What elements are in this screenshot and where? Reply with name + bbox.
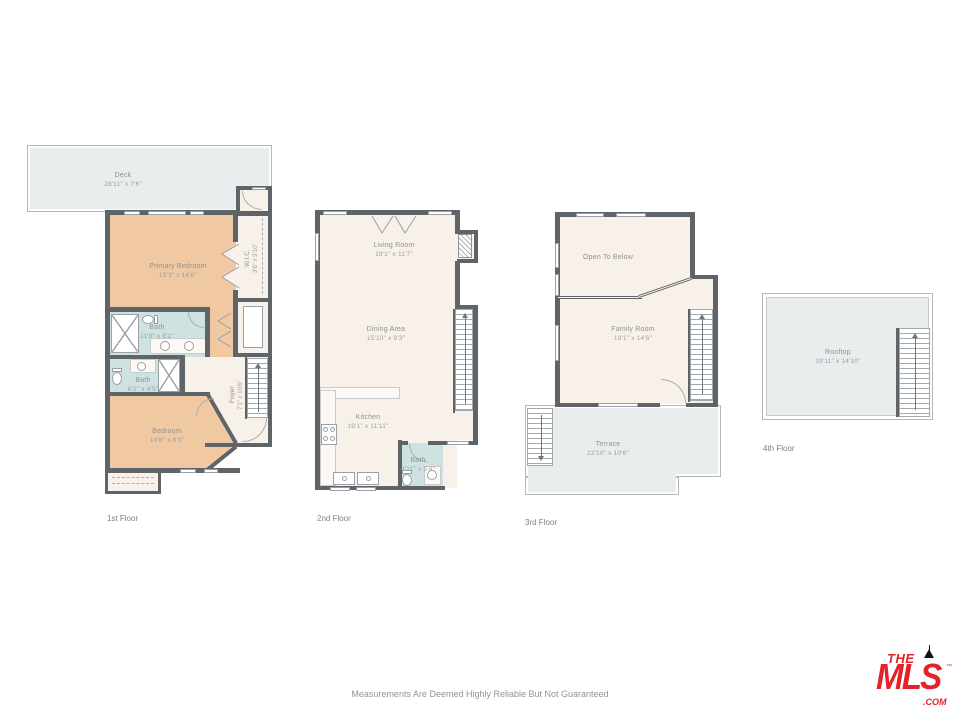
room-label-wic: W.I.C. 3'6" x 9'10" xyxy=(244,220,260,296)
sink xyxy=(342,476,347,481)
wall xyxy=(105,470,108,493)
room-label-dining-area: Dining Area 15'10" x 9'3" xyxy=(326,325,446,343)
stairs xyxy=(899,328,930,417)
room-label-bedroom: Bedroom 14'6" x 8'9" xyxy=(107,427,227,445)
room-name: Primary Bedroom xyxy=(118,262,238,271)
room-name: Kitchen xyxy=(308,413,428,422)
room-name: Dining Area xyxy=(326,325,446,334)
room-dims: 22'10" x 10'6" xyxy=(548,449,668,458)
room-dims: 14'6" x 8'9" xyxy=(107,436,227,445)
room-dims: 19'1" x 11'11" xyxy=(308,422,428,431)
stairs xyxy=(455,309,473,411)
window xyxy=(252,187,266,190)
stair-direction-arrow xyxy=(702,316,703,394)
room-label-open-to-below: Open To Below xyxy=(548,253,668,262)
burner xyxy=(330,436,335,441)
room-name: Deck xyxy=(63,171,183,180)
room-dims: 3'6" x 9'10" xyxy=(252,220,260,296)
sink xyxy=(184,341,194,351)
room-label-foyer: Foyer 7'1" x 10'6" xyxy=(229,360,244,430)
wall xyxy=(398,441,408,445)
window xyxy=(447,441,469,445)
room-name: Open To Below xyxy=(548,253,668,262)
room-dims: 19'11" x 14'10" xyxy=(778,357,898,366)
room-name: Living Room xyxy=(334,241,454,250)
sink xyxy=(160,341,170,351)
window xyxy=(598,403,638,407)
room-fill-bay-window xyxy=(108,470,158,491)
wall xyxy=(236,211,272,216)
room-name: Family Room xyxy=(573,325,693,334)
room-dims: 15'3" x 16'6" xyxy=(118,271,238,280)
closet-shelf xyxy=(243,306,263,348)
room-dims: 28'11" x 7'6" xyxy=(63,180,183,189)
stair-direction-arrow xyxy=(541,415,542,459)
room-name: W.I.C. xyxy=(244,220,252,296)
logo-mls: MLS xyxy=(876,656,940,698)
stairs xyxy=(247,358,268,418)
room-dims: 11'8" x 6'1" xyxy=(97,332,217,341)
window xyxy=(356,487,376,491)
wall xyxy=(105,468,240,473)
floor-label-2nd: 2nd Floor xyxy=(317,514,351,523)
room-label-family-room: Family Room 19'1" x 14'6" xyxy=(573,325,693,343)
room-dims: 19'1" x 14'6" xyxy=(573,334,693,343)
room-label-deck: Deck 28'11" x 7'6" xyxy=(63,171,183,189)
logo-trademark: ™ xyxy=(946,664,952,670)
wall xyxy=(233,210,238,242)
fireplace xyxy=(458,234,472,258)
room-dims: 4'11" x 5'4" xyxy=(358,465,478,474)
stair-direction-arrow xyxy=(915,335,916,410)
window xyxy=(180,469,196,473)
room-name: Bath xyxy=(83,376,203,385)
window xyxy=(555,325,559,361)
window xyxy=(323,211,347,215)
bay-window-line xyxy=(112,477,154,478)
room-name: Foyer xyxy=(229,360,237,430)
room-label-primary-bedroom: Primary Bedroom 15'3" x 16'6" xyxy=(118,262,238,280)
stair-direction-arrow xyxy=(465,315,466,404)
floorplan-sheet: Deck 28'11" x 7'6" Primary Bedroom 15'3"… xyxy=(0,0,960,720)
window xyxy=(428,211,452,215)
room-label-rooftop: Rooftop 19'11" x 14'10" xyxy=(778,348,898,366)
mls-logo: THE MLS ™ .COM xyxy=(876,650,958,714)
room-label-bath2: Bath 6'2" x 4'5" xyxy=(83,376,203,394)
room-name: Bath xyxy=(97,323,217,332)
wall xyxy=(690,212,695,279)
terrace-area xyxy=(528,472,676,481)
window xyxy=(555,274,559,296)
disclaimer-text: Measurements Are Deemed Highly Reliable … xyxy=(0,689,960,699)
wall xyxy=(105,355,185,359)
window xyxy=(148,211,186,215)
wall xyxy=(238,298,272,302)
room-label-kitchen: Kitchen 19'1" x 11'11" xyxy=(308,413,428,431)
room-label-terrace: Terrace 22'10" x 10'6" xyxy=(548,440,668,458)
room-dims: 6'2" x 4'5" xyxy=(83,385,203,394)
closet-rod xyxy=(262,218,263,294)
stair-wall xyxy=(245,357,247,419)
double-door xyxy=(370,215,418,235)
room-dims: 19'1" x 11'7" xyxy=(334,250,454,259)
double-door xyxy=(216,312,232,348)
burner xyxy=(323,436,328,441)
window xyxy=(204,469,218,473)
stair-wall xyxy=(688,309,690,402)
window xyxy=(616,213,646,217)
window xyxy=(576,213,604,217)
wall xyxy=(455,261,460,307)
window xyxy=(190,211,204,215)
wall xyxy=(686,403,718,407)
stairs xyxy=(690,309,713,401)
room-label-bath1: Bath 11'8" x 6'1" xyxy=(97,323,217,341)
room-dims: 7'1" x 10'6" xyxy=(237,360,245,430)
wall xyxy=(105,491,161,494)
room-name: Rooftop xyxy=(778,348,898,357)
floor-label-4th: 4th Floor xyxy=(763,444,795,453)
wall xyxy=(158,470,161,493)
floor-label-1st: 1st Floor xyxy=(107,514,138,523)
sink xyxy=(366,476,371,481)
stair-wall xyxy=(453,309,455,413)
wall xyxy=(238,353,272,357)
sink xyxy=(137,362,146,371)
wall xyxy=(457,259,478,263)
floor-label-3rd: 3rd Floor xyxy=(525,518,557,527)
wall xyxy=(268,186,272,447)
stair-direction-arrow xyxy=(258,365,259,412)
window xyxy=(124,211,140,215)
bay-window-line xyxy=(112,483,154,484)
room-dims: 15'10" x 9'3" xyxy=(326,334,446,343)
window xyxy=(330,487,350,491)
room-name: Terrace xyxy=(548,440,668,449)
logo-com: .COM xyxy=(923,697,947,707)
wall xyxy=(473,307,478,445)
room-name: Bath xyxy=(358,456,478,465)
railing xyxy=(558,296,642,299)
toilet xyxy=(402,474,412,486)
stair-wall xyxy=(896,328,899,417)
room-label-bath: Bath 4'11" x 5'4" xyxy=(358,456,478,474)
room-label-living-room: Living Room 19'1" x 11'7" xyxy=(334,241,454,259)
wall xyxy=(713,275,718,407)
wall xyxy=(555,212,560,407)
window xyxy=(315,233,319,261)
room-name: Bedroom xyxy=(107,427,227,436)
